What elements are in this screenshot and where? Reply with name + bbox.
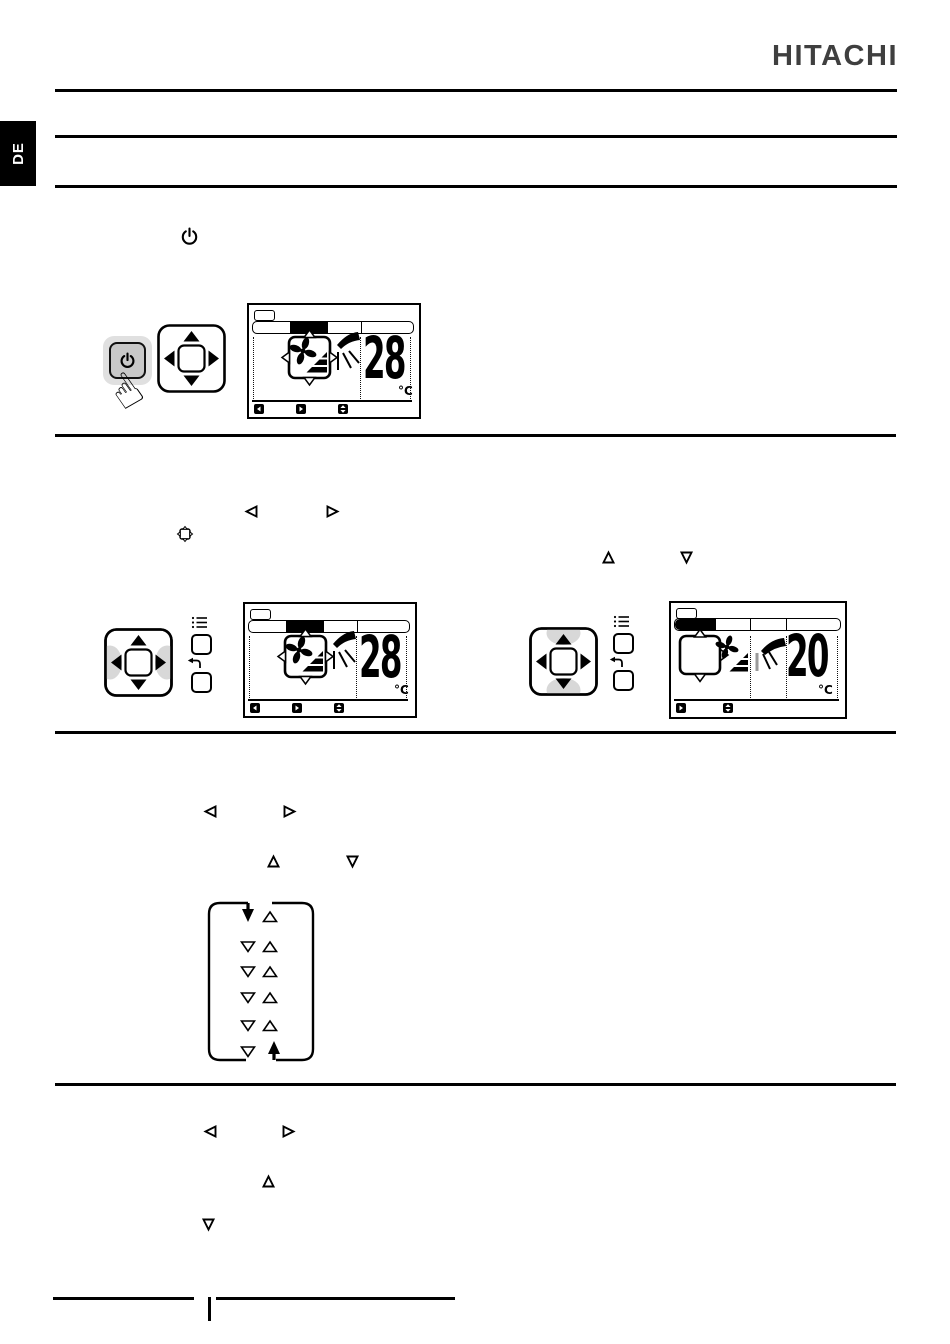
left-triangle-icon	[203, 1124, 218, 1139]
hitachi-logo: HITACHI	[748, 40, 898, 73]
temperature-cycle-diagram	[202, 897, 324, 1071]
cursor-down-triangle	[695, 674, 706, 682]
dpad-center-button	[179, 346, 205, 372]
softkey-rule	[674, 699, 839, 701]
cursor-up-triangle	[304, 330, 315, 338]
left-triangle-icon	[203, 804, 218, 819]
airflow-icon	[337, 332, 360, 370]
down-triangle-icon	[679, 550, 694, 565]
up-triangle-icon	[601, 550, 616, 565]
language-tab: DE	[0, 121, 36, 186]
dpad-up-down-highlight	[529, 627, 598, 696]
cursor-right-triangle	[330, 352, 338, 363]
lcd-display-2: 28 °C	[243, 602, 417, 718]
right-arrow-key-icon	[296, 404, 306, 414]
dpad-center-button	[551, 649, 577, 675]
left-triangle-icon	[244, 504, 259, 519]
wrap-path-right	[272, 903, 313, 1060]
dpad	[157, 324, 226, 393]
temperature-unit: °C	[398, 384, 413, 398]
down-triangle-icon	[201, 1217, 216, 1232]
lcd-display-3: 20 °C	[669, 601, 847, 719]
language-tab-label: DE	[10, 142, 27, 165]
temperature-unit: °C	[394, 683, 409, 697]
down-arrow-filled	[242, 909, 254, 922]
section-divider	[55, 731, 896, 734]
header-rule-2	[55, 135, 897, 138]
up-down-key-icon	[723, 703, 733, 713]
cursor-left-triangle	[282, 352, 290, 363]
softkey-rule	[252, 400, 412, 402]
cursor-frame-icon	[176, 525, 194, 543]
fan-mode-cursor-icon	[275, 627, 357, 687]
wrap-path-left	[209, 903, 248, 1060]
menu-icon	[613, 615, 630, 628]
softkey-rule	[248, 699, 408, 701]
footer-page-tick	[208, 1297, 211, 1321]
power-icon	[181, 227, 198, 247]
temperature-value: 20	[786, 627, 828, 685]
right-triangle-icon	[281, 1124, 296, 1139]
menu-icon	[191, 616, 208, 629]
right-arrow-key-icon	[676, 703, 686, 713]
return-button	[191, 672, 212, 693]
section-divider	[55, 1083, 896, 1086]
divider-dotted	[750, 636, 751, 700]
menu-button	[613, 633, 634, 654]
fan-mode-cursor-icon	[279, 328, 361, 388]
softkey-slot	[254, 310, 275, 321]
down-triangle-icon	[345, 854, 360, 869]
up-triangle-icon	[266, 854, 281, 869]
right-triangle-icon	[325, 504, 340, 519]
header-rule-3	[55, 185, 897, 188]
divider-dotted	[249, 636, 250, 698]
up-down-key-icon	[338, 404, 348, 414]
return-button	[613, 670, 634, 691]
menu-button	[191, 634, 212, 655]
cursor-up-triangle	[695, 630, 706, 638]
manual-page: HITACHI DE ☝	[0, 0, 950, 1344]
header-rule-1	[55, 89, 897, 92]
airflow-icon	[333, 631, 356, 669]
dpad-left-right-highlight	[104, 628, 173, 697]
divider-dotted	[253, 337, 254, 399]
softkey-slot	[250, 609, 271, 620]
divider-dotted	[837, 636, 838, 700]
airflow-icon	[753, 635, 788, 675]
dpad-center-button	[126, 650, 152, 676]
fan-icon	[712, 632, 742, 662]
temperature-value: 28	[359, 628, 401, 686]
up-triangle-icon	[261, 1174, 276, 1189]
right-arrow-key-icon	[292, 703, 302, 713]
mode-bar-divider	[750, 619, 751, 630]
section-divider	[55, 434, 896, 437]
left-arrow-key-icon	[250, 703, 260, 713]
return-icon	[187, 657, 202, 669]
right-triangle-icon	[282, 804, 297, 819]
left-arrow-key-icon	[254, 404, 264, 414]
louver-icon	[730, 653, 749, 672]
up-down-key-icon	[334, 703, 344, 713]
return-icon	[609, 656, 624, 668]
footer-rule-right	[216, 1297, 455, 1300]
step-triangles	[242, 912, 277, 1057]
up-arrow-filled	[268, 1041, 280, 1054]
temperature-value: 28	[363, 329, 405, 387]
fan-louver-icon	[717, 637, 750, 673]
cursor-down-triangle	[304, 378, 315, 386]
temperature-unit: °C	[818, 683, 833, 697]
lcd-display-1: 28 °C	[247, 303, 421, 419]
footer-rule-left	[53, 1297, 194, 1300]
